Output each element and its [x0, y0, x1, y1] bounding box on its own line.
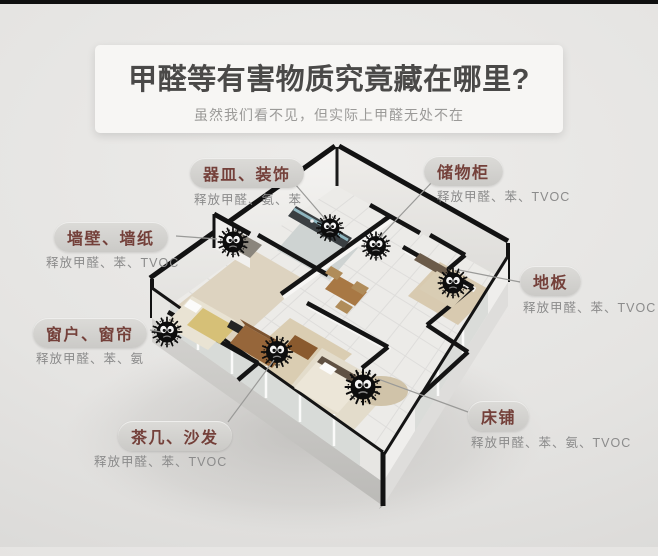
coffee-table-sofa-release-text: 释放甲醛、苯、TVOC	[94, 451, 227, 470]
bed-release-text: 释放甲醛、苯、氨、TVOC	[471, 432, 631, 451]
page-title: 甲醛等有害物质究竟藏在哪里?	[95, 56, 563, 98]
germ-ball-icon	[362, 232, 390, 260]
dishes-decor-label-pill: 器皿、装饰	[190, 158, 304, 188]
window-curtain-label-pill: 窗户、窗帘	[33, 318, 147, 348]
storage-cabinet-release-text: 释放甲醛、苯、TVOC	[437, 186, 570, 205]
wall-wallpaper-release-text: 释放甲醛、苯、TVOC	[46, 252, 179, 271]
germ-ball-icon	[346, 370, 381, 405]
germ-ball-icon	[438, 268, 467, 297]
callout-window-curtain: 窗户、窗帘 释放甲醛、苯、氨	[33, 318, 147, 348]
top-border-bar	[0, 0, 658, 4]
floor-label-pill: 地板	[520, 266, 581, 296]
germ-ball-icon	[317, 215, 344, 242]
bottom-border-strip	[0, 547, 658, 556]
window-curtain-release-text: 释放甲醛、苯、氨	[36, 348, 144, 367]
dishes-decor-release-text: 释放甲醛、氨、苯	[194, 189, 302, 208]
infographic-page: 甲醛等有害物质究竟藏在哪里? 虽然我们看不见，但实际上甲醛无处不在	[0, 0, 658, 556]
title-card: 甲醛等有害物质究竟藏在哪里? 虽然我们看不见，但实际上甲醛无处不在	[95, 45, 563, 133]
callout-floor: 地板 释放甲醛、苯、TVOC	[520, 266, 581, 296]
germ-ball-icon	[218, 227, 247, 256]
germ-ball-icon	[262, 337, 293, 368]
bed-label-pill: 床铺	[468, 401, 529, 431]
floor-release-text: 释放甲醛、苯、TVOC	[523, 297, 656, 316]
callout-coffee-table-sofa: 茶几、沙发 释放甲醛、苯、TVOC	[118, 421, 232, 451]
germ-ball-icon	[152, 317, 181, 346]
callout-wall-wallpaper: 墙壁、墙纸 释放甲醛、苯、TVOC	[54, 222, 168, 252]
page-subtitle: 虽然我们看不见，但实际上甲醛无处不在	[95, 105, 563, 125]
callout-dishes-decor: 器皿、装饰 释放甲醛、氨、苯	[190, 158, 304, 188]
callout-bed: 床铺 释放甲醛、苯、氨、TVOC	[468, 401, 529, 431]
storage-cabinet-label-pill: 储物柜	[424, 156, 503, 186]
callout-storage-cabinet: 储物柜 释放甲醛、苯、TVOC	[424, 156, 503, 186]
wall-wallpaper-label-pill: 墙壁、墙纸	[54, 222, 168, 252]
coffee-table-sofa-label-pill: 茶几、沙发	[118, 421, 232, 451]
